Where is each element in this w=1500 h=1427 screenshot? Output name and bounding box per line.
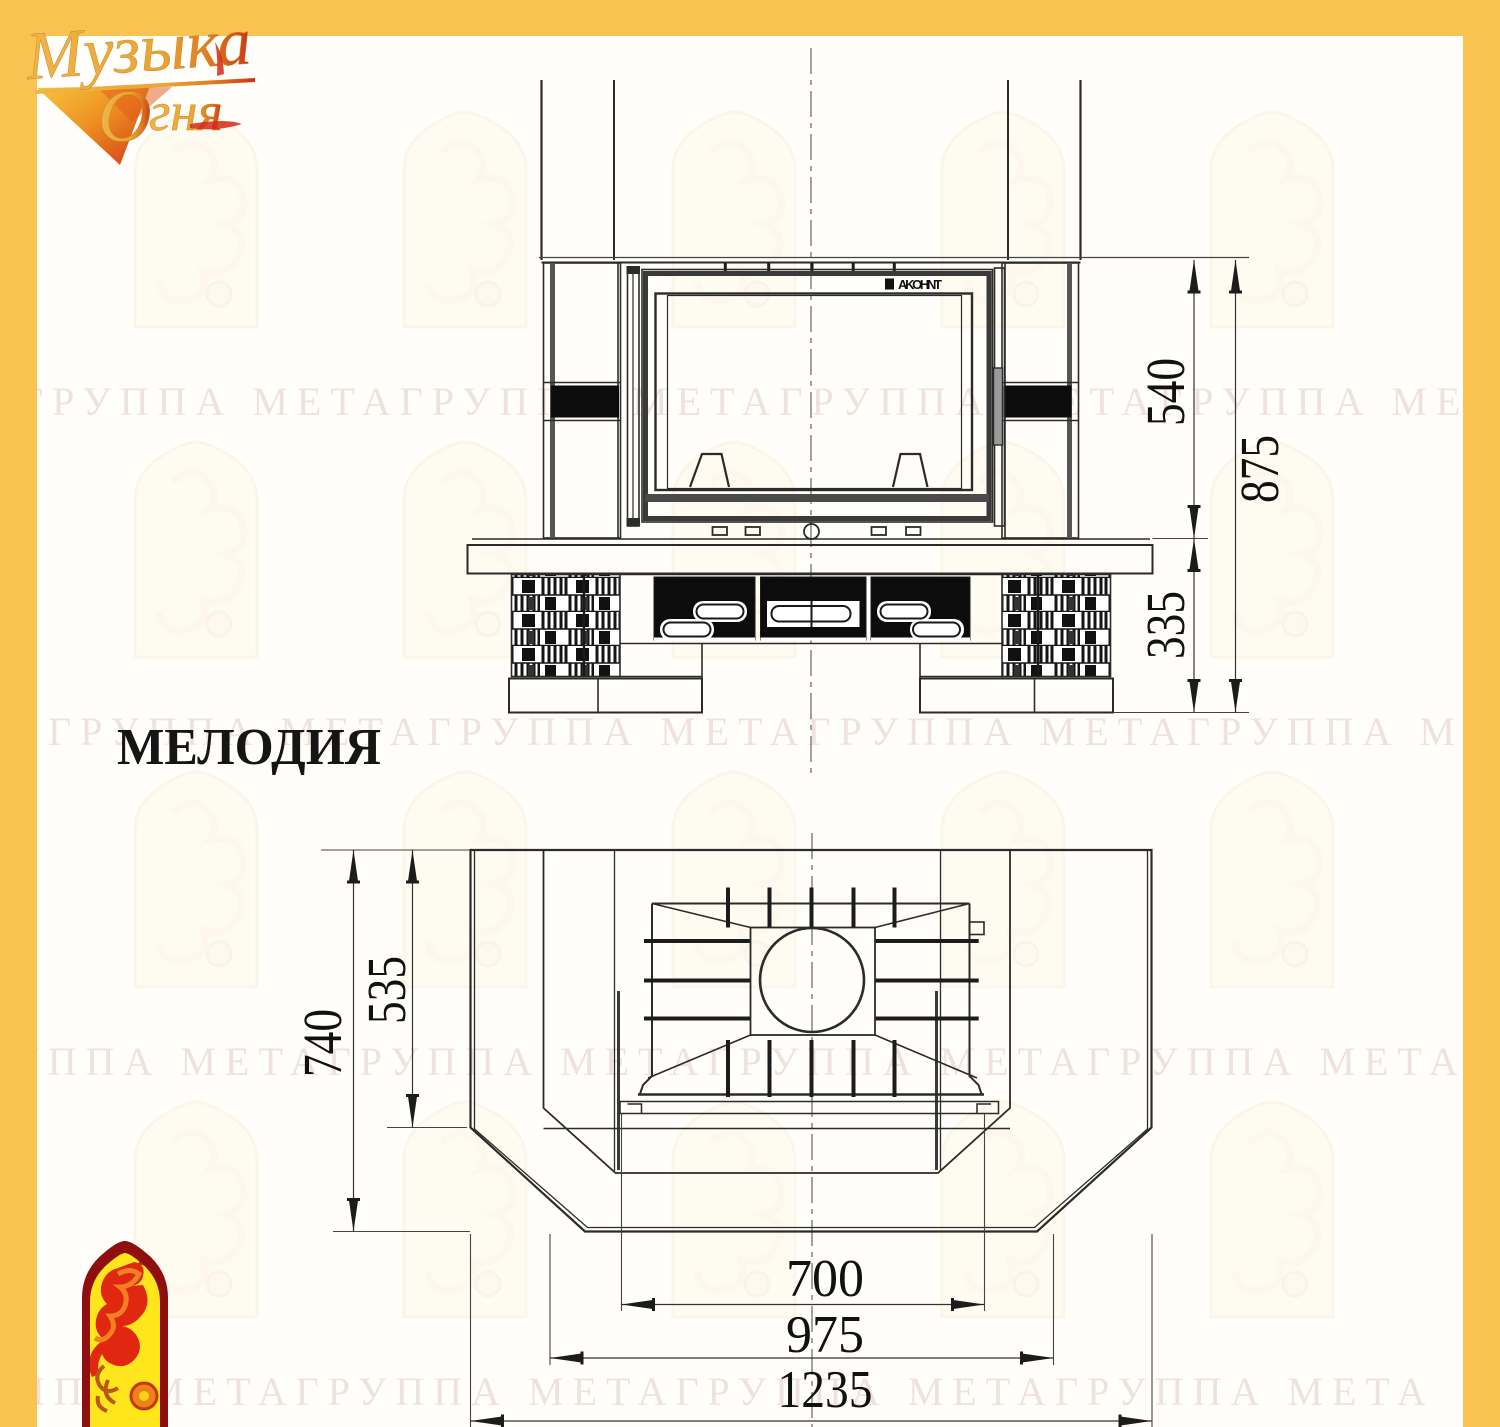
svg-text:1235: 1235 [778,1361,873,1419]
svg-text:335: 335 [1135,591,1196,659]
svg-text:700: 700 [786,1250,864,1308]
svg-text:975: 975 [786,1306,864,1364]
svg-text:МЕЛОДИЯ: МЕЛОДИЯ [117,719,381,776]
svg-text:AKOHNT: AKOHNT [898,277,942,292]
svg-text:535: 535 [356,956,417,1024]
svg-text:540: 540 [1135,358,1196,426]
svg-text:875: 875 [1229,435,1290,503]
svg-text:740: 740 [292,1009,353,1077]
